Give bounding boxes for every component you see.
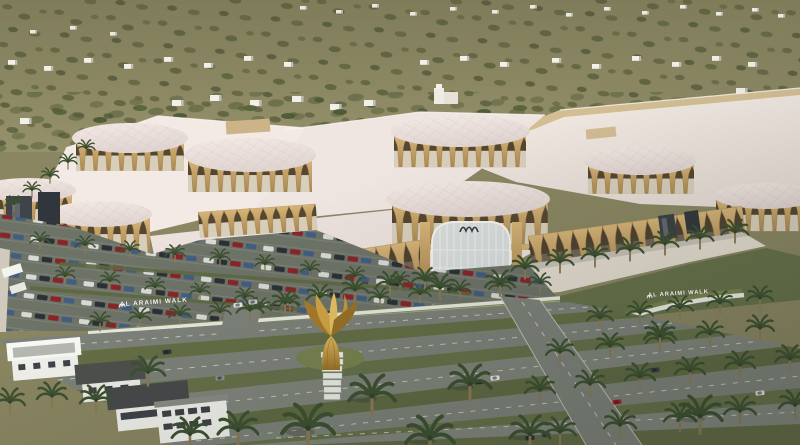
- render-canvas: [0, 0, 800, 445]
- scene-al-araimi-walk-aerial: AL ARAIMI WALK AL ARAIMI WALK: [0, 0, 800, 445]
